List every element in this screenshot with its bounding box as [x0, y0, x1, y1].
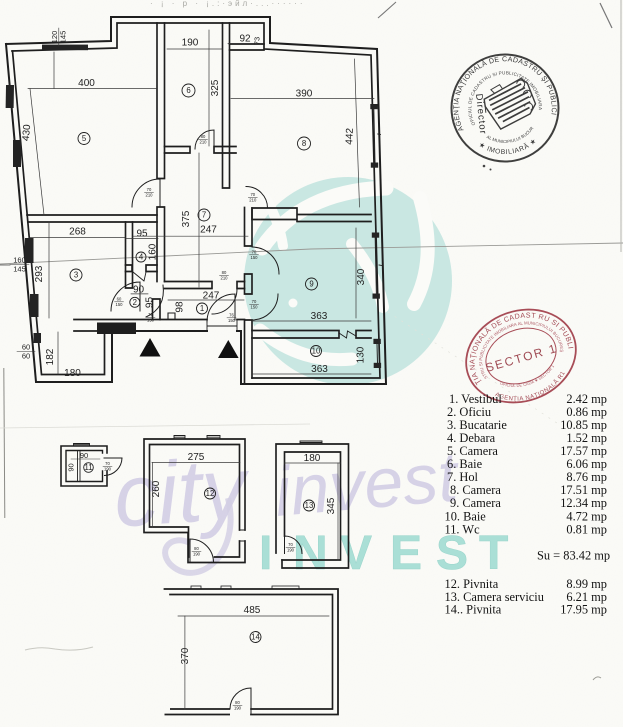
svg-text:190: 190: [182, 38, 199, 49]
svg-text:6.06 mp: 6.06 mp: [566, 457, 607, 471]
svg-text:90: 90: [133, 285, 145, 296]
svg-text:375: 375: [181, 210, 192, 227]
svg-text:0.86 mp: 0.86 mp: [566, 405, 607, 419]
svg-text:80: 80: [194, 546, 199, 551]
svg-text:60: 60: [22, 343, 30, 352]
svg-text:76: 76: [229, 313, 234, 318]
svg-text:4: 4: [139, 253, 144, 262]
svg-text:190: 190: [193, 552, 201, 557]
svg-text:268: 268: [69, 227, 86, 238]
svg-text:92: 92: [239, 34, 251, 45]
svg-text:17.95 mp: 17.95 mp: [560, 603, 607, 617]
svg-text:150: 150: [251, 255, 259, 260]
svg-text:370: 370: [180, 647, 191, 664]
svg-text:8. Camera: 8. Camera: [450, 483, 501, 497]
svg-text:3. Bucatarie: 3. Bucatarie: [447, 418, 507, 432]
svg-text:0.81 mp: 0.81 mp: [566, 522, 607, 536]
svg-text:145: 145: [13, 265, 26, 274]
svg-text:7: 7: [202, 211, 206, 220]
svg-text:145: 145: [59, 31, 68, 44]
svg-text:70: 70: [250, 192, 255, 197]
svg-text:70: 70: [288, 542, 293, 547]
svg-text:390: 390: [296, 89, 313, 100]
svg-text:80: 80: [235, 700, 240, 705]
svg-text:· ¡ · p · ¡.:·эйл·...······: · ¡ · p · ¡.:·эйл·...······: [150, 0, 306, 8]
svg-text:2: 2: [133, 298, 137, 307]
svg-text:160: 160: [13, 256, 26, 265]
svg-text:182: 182: [45, 348, 56, 365]
svg-text:5: 5: [82, 134, 87, 143]
svg-text:6. Baie: 6. Baie: [447, 457, 483, 471]
svg-text:90: 90: [80, 451, 88, 460]
svg-text:210: 210: [146, 193, 154, 198]
svg-text:8.76 mp: 8.76 mp: [566, 470, 607, 484]
svg-text:293: 293: [34, 265, 45, 282]
svg-text:180: 180: [64, 368, 81, 379]
svg-text:9. Camera: 9. Camera: [450, 496, 501, 510]
svg-text:13: 13: [305, 501, 314, 510]
svg-text:247: 247: [200, 225, 217, 236]
svg-text:98: 98: [175, 301, 186, 313]
svg-text:95: 95: [145, 297, 156, 309]
svg-text:160: 160: [148, 243, 159, 260]
svg-text:17.57 mp: 17.57 mp: [560, 444, 607, 458]
svg-text:10.85 mp: 10.85 mp: [560, 418, 607, 432]
svg-text:210: 210: [249, 198, 257, 203]
svg-text:1: 1: [200, 304, 204, 313]
svg-text:430: 430: [21, 124, 33, 142]
svg-text:11: 11: [84, 463, 92, 472]
svg-text:70: 70: [105, 461, 110, 466]
svg-text:340: 340: [356, 268, 367, 285]
svg-text:T: T: [479, 527, 508, 580]
svg-text:E: E: [390, 527, 422, 580]
svg-text:10: 10: [312, 347, 321, 356]
svg-text:5. Camera: 5. Camera: [447, 444, 498, 458]
svg-text:6: 6: [186, 86, 190, 95]
svg-text:400: 400: [78, 78, 95, 89]
svg-text:2. Oficiu: 2. Oficiu: [447, 405, 491, 419]
svg-text:442: 442: [344, 127, 356, 145]
svg-text:485: 485: [244, 605, 261, 616]
svg-text:14: 14: [251, 633, 260, 642]
svg-text:150: 150: [251, 305, 259, 310]
svg-text:Su = 83.42 mp: Su = 83.42 mp: [537, 549, 610, 563]
svg-text:190: 190: [104, 467, 112, 472]
svg-text:180: 180: [304, 453, 321, 464]
svg-text:80: 80: [222, 270, 227, 275]
svg-text:80: 80: [201, 134, 206, 139]
svg-text:345: 345: [326, 497, 337, 514]
svg-text:363: 363: [311, 364, 328, 375]
svg-text:I: I: [259, 527, 272, 580]
svg-text:invest: invest: [272, 437, 464, 531]
svg-text:12: 12: [206, 489, 215, 498]
svg-text:190: 190: [287, 548, 295, 553]
svg-text:275: 275: [188, 452, 205, 463]
svg-text:4. Debara: 4. Debara: [447, 431, 496, 445]
svg-text:8: 8: [302, 139, 306, 148]
svg-text:4.72 mp: 4.72 mp: [566, 509, 607, 523]
svg-text:12.34 mp: 12.34 mp: [560, 496, 607, 510]
svg-text:150: 150: [147, 318, 155, 323]
svg-text:60: 60: [22, 352, 30, 361]
svg-text:95: 95: [136, 228, 148, 239]
svg-text:9: 9: [309, 280, 313, 289]
svg-text:7. Hol: 7. Hol: [447, 470, 479, 484]
svg-text:210: 210: [221, 276, 229, 281]
svg-text:363: 363: [311, 311, 328, 322]
svg-text:70: 70: [147, 187, 152, 192]
svg-text:V: V: [340, 527, 372, 580]
svg-text:70: 70: [252, 299, 257, 304]
svg-text:N: N: [293, 527, 328, 580]
svg-text:2.42 mp: 2.42 mp: [566, 392, 607, 406]
svg-text:210: 210: [200, 140, 208, 145]
svg-text:247: 247: [203, 291, 220, 302]
svg-text:70: 70: [252, 250, 257, 255]
svg-text:17.51 mp: 17.51 mp: [560, 483, 607, 497]
svg-text:1. Vestibul: 1. Vestibul: [449, 392, 502, 406]
svg-text:190: 190: [234, 706, 242, 711]
svg-text:90: 90: [67, 463, 76, 471]
svg-text:14.. Pivnita: 14.. Pivnita: [445, 603, 502, 617]
svg-text:150: 150: [228, 318, 236, 323]
svg-text:60: 60: [117, 297, 122, 302]
svg-text:150: 150: [116, 302, 124, 307]
svg-text:130: 130: [356, 346, 367, 363]
svg-text:11. Wc: 11. Wc: [445, 522, 481, 536]
svg-text:10. Baie: 10. Baie: [445, 509, 487, 523]
svg-text:1.52 mp: 1.52 mp: [566, 431, 607, 445]
svg-text:76: 76: [148, 312, 153, 317]
svg-text:325: 325: [210, 79, 221, 96]
svg-text:73: 73: [253, 37, 262, 45]
svg-text:3: 3: [74, 271, 78, 280]
